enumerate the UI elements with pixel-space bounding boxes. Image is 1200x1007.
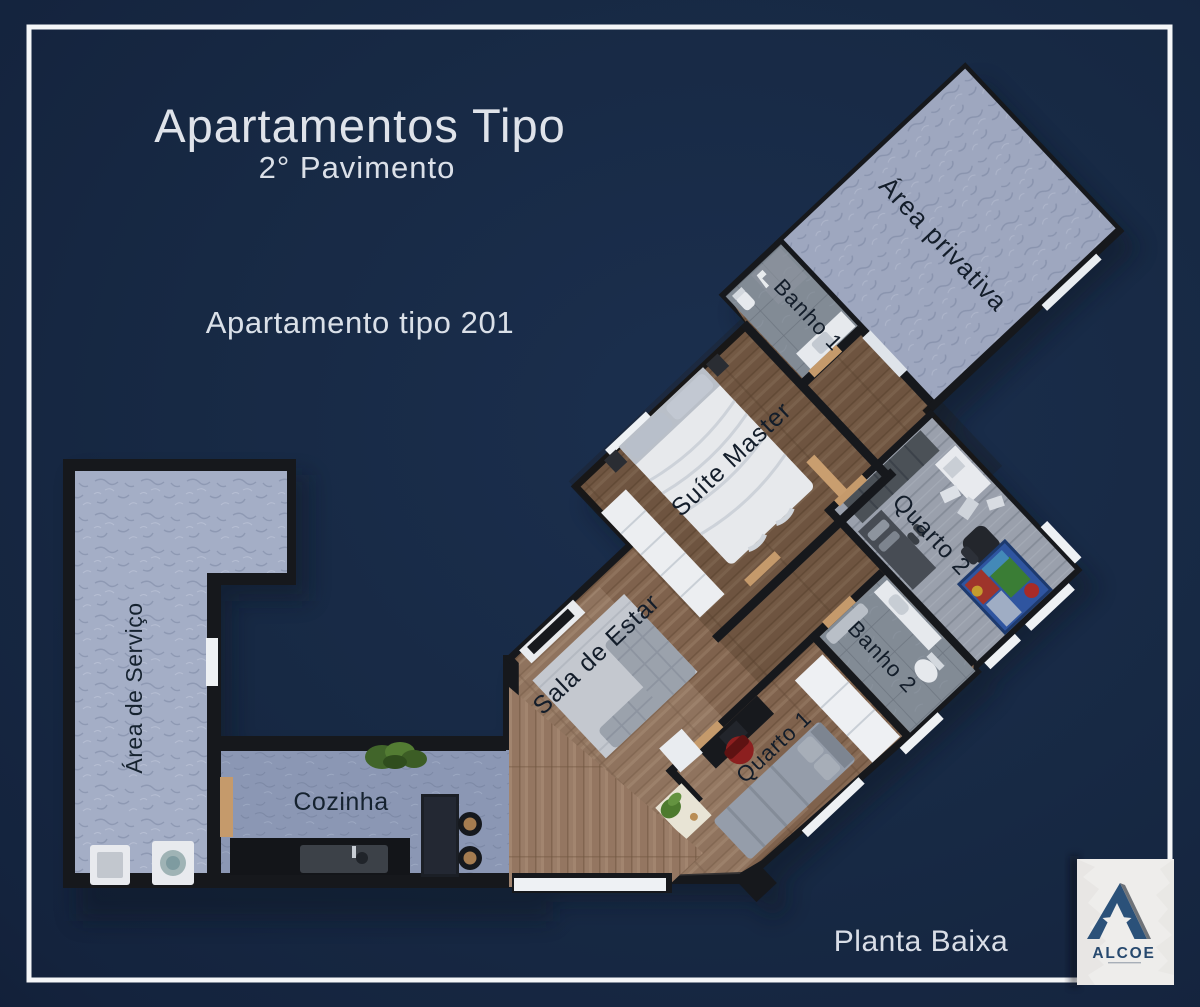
svg-text:Cozinha: Cozinha bbox=[293, 788, 388, 816]
svg-text:Apartamentos Tipo: Apartamentos Tipo bbox=[154, 99, 566, 152]
svg-text:ALCOE: ALCOE bbox=[1092, 945, 1155, 962]
svg-text:Área de Serviço: Área de Serviço bbox=[121, 602, 147, 773]
svg-text:Apartamento tipo 201: Apartamento tipo 201 bbox=[206, 305, 514, 340]
svg-text:Planta Baixa: Planta Baixa bbox=[834, 925, 1008, 958]
svg-text:2° Pavimento: 2° Pavimento bbox=[259, 150, 456, 185]
